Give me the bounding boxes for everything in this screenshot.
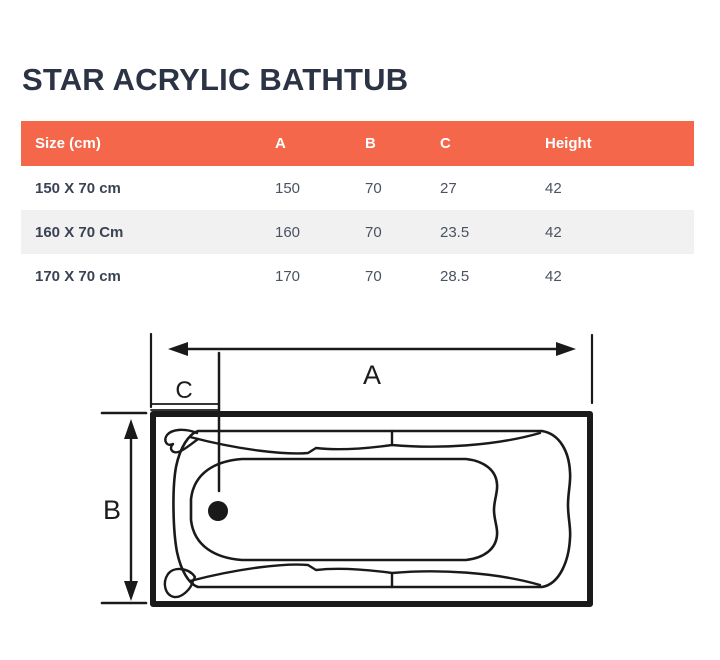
cell-height: 42 xyxy=(531,268,694,285)
cell-height: 42 xyxy=(531,224,694,241)
cell-size: 170 X 70 cm xyxy=(21,268,261,285)
column-header-a: A xyxy=(261,135,351,152)
cell-b: 70 xyxy=(351,224,426,241)
cell-a: 150 xyxy=(261,180,351,197)
cell-b: 70 xyxy=(351,180,426,197)
dim-label-a: A xyxy=(363,360,381,390)
tub-rim-outline xyxy=(173,431,570,587)
page-title: STAR ACRYLIC BATHTUB xyxy=(22,62,408,98)
table-row: 170 X 70 cm 170 70 28.5 42 xyxy=(21,254,694,298)
column-header-b: B xyxy=(351,135,426,152)
cell-c: 27 xyxy=(426,180,531,197)
column-header-c: C xyxy=(426,135,531,152)
dim-a-arrowhead-left-icon xyxy=(168,342,188,356)
table-row: 150 X 70 cm 150 70 27 42 xyxy=(21,166,694,210)
cell-b: 70 xyxy=(351,268,426,285)
spec-table: Size (cm) A B C Height 150 X 70 cm 150 7… xyxy=(21,121,694,298)
drain-dot xyxy=(208,501,228,521)
cell-a: 160 xyxy=(261,224,351,241)
cell-c: 28.5 xyxy=(426,268,531,285)
tub-wave-line-bottom xyxy=(190,565,540,587)
dim-b-arrowhead-bottom-icon xyxy=(124,581,138,601)
cell-c: 23.5 xyxy=(426,224,531,241)
cell-size: 150 X 70 cm xyxy=(21,180,261,197)
tub-wave-line-top xyxy=(190,431,540,453)
table-header-row: Size (cm) A B C Height xyxy=(21,121,694,166)
bathtub-dimension-diagram: A C B xyxy=(95,328,605,620)
page: STAR ACRYLIC BATHTUB Size (cm) A B C Hei… xyxy=(0,0,720,660)
cell-height: 42 xyxy=(531,180,694,197)
table-row: 160 X 70 Cm 160 70 23.5 42 xyxy=(21,210,694,254)
column-header-size: Size (cm) xyxy=(21,135,261,152)
dim-label-c: C xyxy=(175,377,192,404)
column-header-height: Height xyxy=(531,135,694,152)
dim-b-arrowhead-top-icon xyxy=(124,419,138,439)
dim-a-arrowhead-right-icon xyxy=(556,342,576,356)
dim-c-bracket-lines xyxy=(151,404,219,410)
cell-a: 170 xyxy=(261,268,351,285)
tub-basin-outline xyxy=(191,459,497,560)
dim-label-b: B xyxy=(103,495,121,525)
cell-size: 160 X 70 Cm xyxy=(21,224,261,241)
